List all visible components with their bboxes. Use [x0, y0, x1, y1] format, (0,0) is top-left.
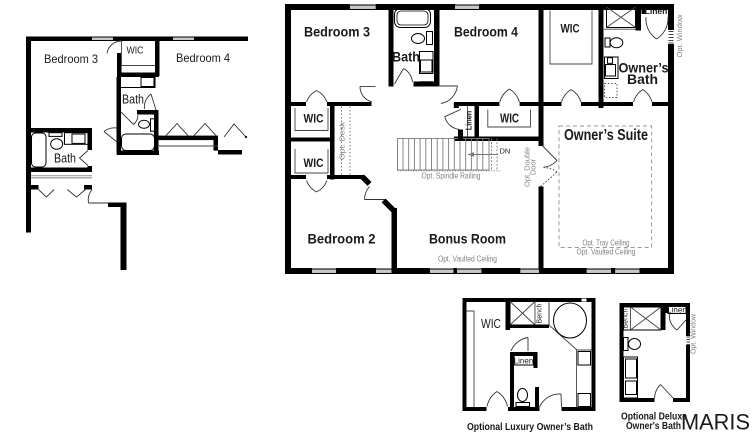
svg-text:Bath: Bath — [627, 72, 658, 87]
svg-text:Bath: Bath — [392, 49, 420, 65]
svg-text:Linen: Linen — [465, 111, 474, 131]
svg-text:WIC: WIC — [481, 317, 501, 331]
svg-text:Opt. Vaulted Ceiling: Opt. Vaulted Ceiling — [577, 247, 636, 257]
svg-text:Bedroom 4: Bedroom 4 — [176, 51, 230, 65]
svg-text:Linen: Linen — [667, 306, 687, 315]
svg-text:Door: Door — [529, 158, 538, 175]
svg-text:Linen: Linen — [514, 357, 534, 366]
svg-text:Opt. Spindle Railing: Opt. Spindle Railing — [422, 171, 481, 181]
svg-text:Opt. Window: Opt. Window — [675, 14, 684, 58]
svg-text:Optional Luxury Owner’s Bath: Optional Luxury Owner’s Bath — [467, 422, 593, 433]
svg-text:Bench: Bench — [537, 303, 544, 323]
svg-text:Bath: Bath — [122, 93, 144, 107]
svg-text:Owner's Bath: Owner's Bath — [626, 421, 681, 432]
svg-text:WIC: WIC — [304, 112, 324, 126]
svg-text:MARIS: MARIS — [681, 410, 750, 435]
svg-text:Bedroom 4: Bedroom 4 — [454, 25, 518, 40]
svg-text:Bedroom 3: Bedroom 3 — [304, 25, 370, 40]
svg-text:WIC: WIC — [127, 45, 144, 57]
svg-text:Bonus Room: Bonus Room — [429, 231, 506, 247]
svg-text:Opt. Window: Opt. Window — [691, 313, 698, 354]
svg-text:Bedroom 2: Bedroom 2 — [308, 231, 376, 247]
svg-text:Bedroom 3: Bedroom 3 — [44, 52, 98, 66]
svg-text:Opt. Vaulted Ceiling: Opt. Vaulted Ceiling — [438, 254, 497, 264]
svg-text:Opt. Desk: Opt. Desk — [338, 122, 347, 160]
svg-text:Bench: Bench — [622, 308, 629, 328]
svg-text:WIC: WIC — [561, 24, 580, 36]
svg-text:Owner’s Suite: Owner’s Suite — [564, 127, 648, 144]
svg-text:WIC: WIC — [304, 156, 324, 170]
svg-text:WIC: WIC — [500, 112, 519, 126]
svg-text:Linen: Linen — [645, 6, 668, 16]
svg-text:DN: DN — [500, 147, 511, 156]
svg-text:Bath: Bath — [54, 152, 76, 166]
